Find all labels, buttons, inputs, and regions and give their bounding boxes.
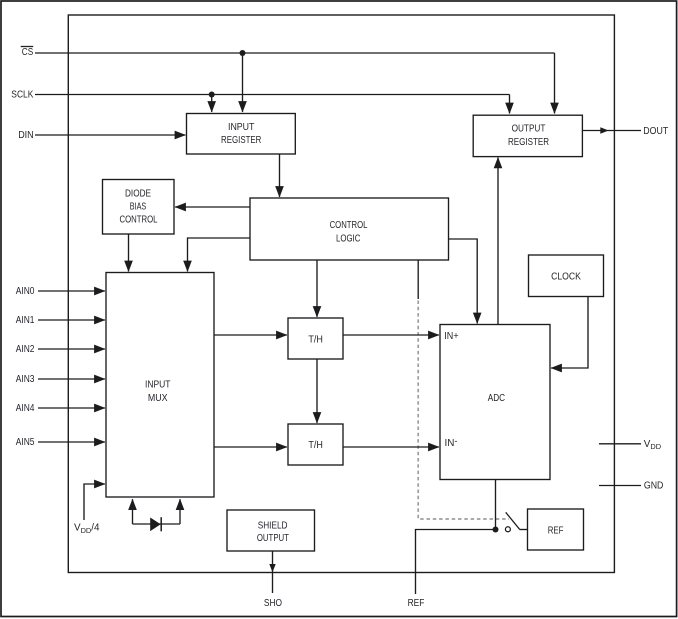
svg-text:CONTROL: CONTROL xyxy=(330,220,368,231)
svg-text:REGISTER: REGISTER xyxy=(508,137,549,148)
svg-text:CONTROL: CONTROL xyxy=(120,215,158,226)
svg-text:AIN3: AIN3 xyxy=(16,374,35,385)
svg-text:GND: GND xyxy=(644,480,664,491)
svg-text:T/H: T/H xyxy=(308,334,323,345)
svg-text:INPUT: INPUT xyxy=(228,122,254,133)
svg-text:AIN1: AIN1 xyxy=(16,315,35,326)
svg-text:CS: CS xyxy=(22,47,34,58)
svg-text:REF: REF xyxy=(548,525,564,536)
svg-text:AIN5: AIN5 xyxy=(16,437,35,448)
svg-text:INPUT: INPUT xyxy=(145,380,170,391)
svg-text:IN-: IN- xyxy=(445,436,458,449)
svg-text:REGISTER: REGISTER xyxy=(221,135,261,146)
svg-text:VDD: VDD xyxy=(644,439,661,451)
svg-text:SCLK: SCLK xyxy=(11,89,33,100)
svg-text:SHO: SHO xyxy=(264,598,282,609)
svg-text:REF: REF xyxy=(408,598,425,609)
svg-text:ADC: ADC xyxy=(488,393,505,404)
svg-text:SHIELD: SHIELD xyxy=(258,520,288,531)
svg-text:AIN2: AIN2 xyxy=(16,344,35,355)
svg-text:OUTPUT: OUTPUT xyxy=(257,533,289,544)
svg-text:VDD/4: VDD/4 xyxy=(74,523,100,535)
svg-text:MUX: MUX xyxy=(148,393,168,404)
svg-text:AIN0: AIN0 xyxy=(16,286,35,297)
svg-text:DIN: DIN xyxy=(18,130,34,141)
svg-text:AIN4: AIN4 xyxy=(16,403,35,414)
svg-text:LOGIC: LOGIC xyxy=(336,233,360,244)
svg-text:IN+: IN+ xyxy=(444,331,458,342)
svg-text:T/H: T/H xyxy=(308,440,323,451)
svg-text:DIODE: DIODE xyxy=(125,188,151,199)
svg-text:OUTPUT: OUTPUT xyxy=(512,124,546,135)
svg-text:CLOCK: CLOCK xyxy=(551,272,581,283)
svg-text:BIAS: BIAS xyxy=(130,202,147,213)
svg-text:DOUT: DOUT xyxy=(643,126,668,137)
